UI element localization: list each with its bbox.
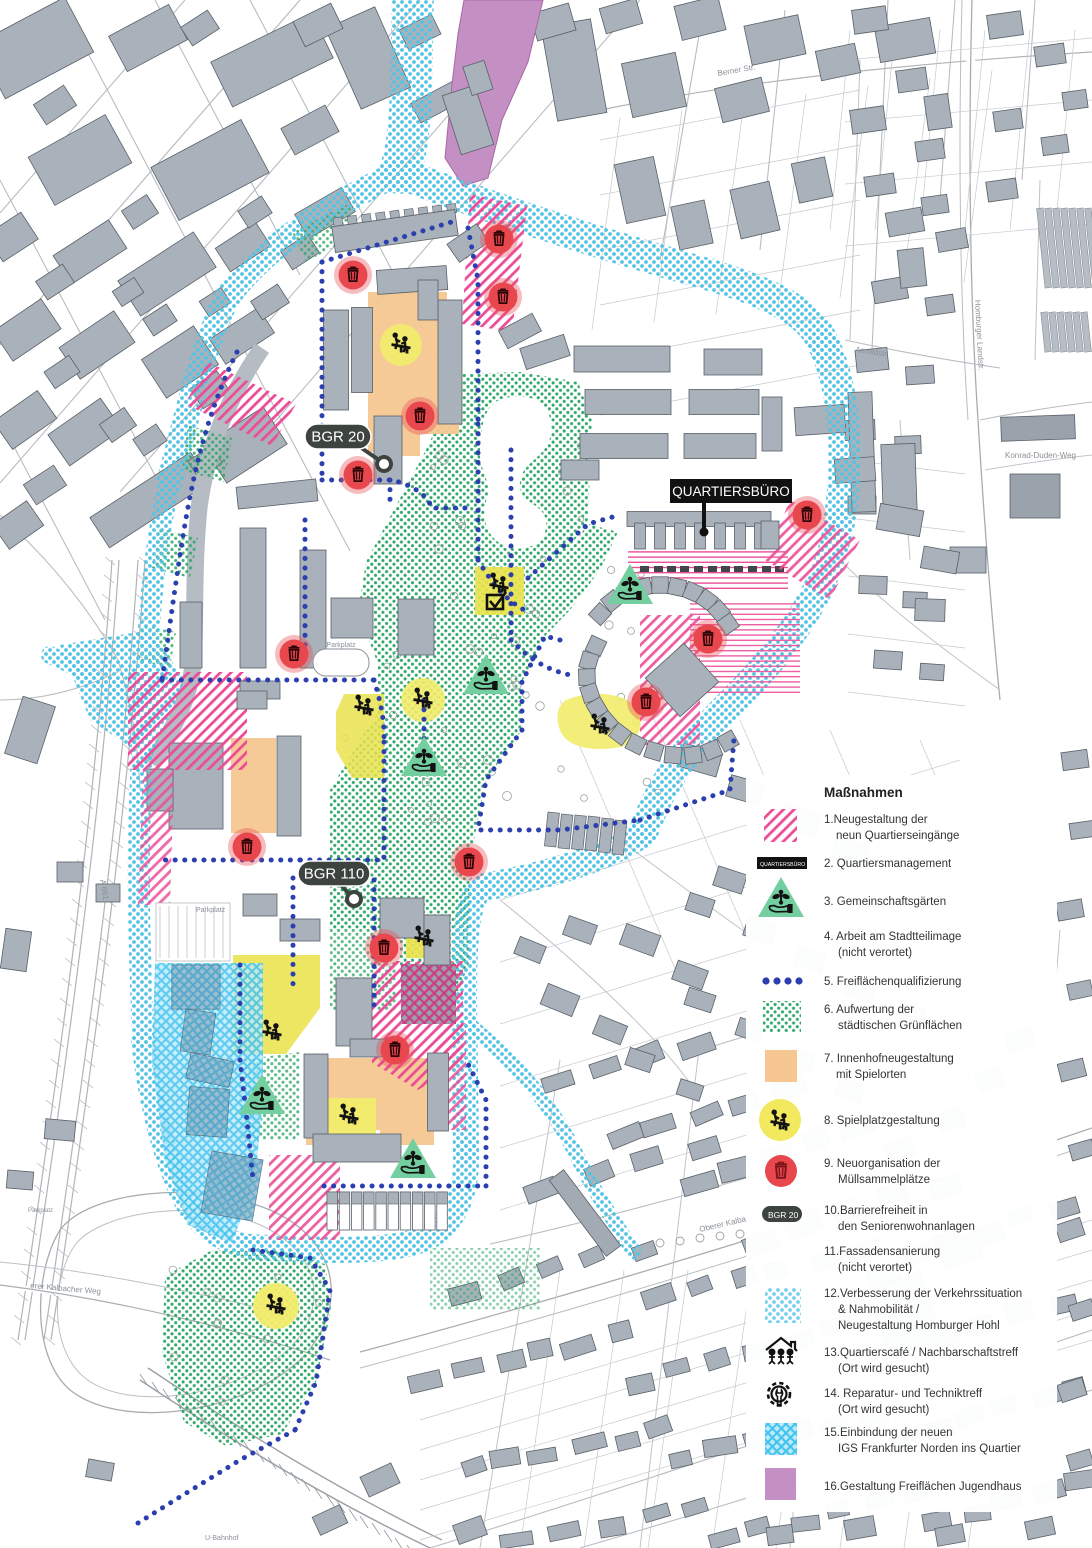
svg-text:städtischen Grünflächen: städtischen Grünflächen [838, 1020, 962, 1032]
svg-text:1.Neugestaltung der: 1.Neugestaltung der [824, 814, 928, 826]
svg-text:2. Quartiersmanagement: 2. Quartiersmanagement [824, 858, 952, 870]
svg-text:QUARTIERSBÜRO: QUARTIERSBÜRO [760, 861, 805, 868]
svg-text:BGR 20: BGR 20 [311, 429, 364, 446]
svg-text:IGS Frankfurter Norden ins Qua: IGS Frankfurter Norden ins Quartier [838, 1443, 1021, 1455]
svg-text:7. Innenhofneugestaltung: 7. Innenhofneugestaltung [824, 1053, 954, 1065]
svg-text:Neugestaltung Homburger Hohl: Neugestaltung Homburger Hohl [838, 1320, 1000, 1332]
svg-text:5. Freiflächenqualifizierung: 5. Freiflächenqualifizierung [824, 976, 961, 988]
svg-text:8. Spielplatzgestaltung: 8. Spielplatzgestaltung [824, 1115, 940, 1127]
svg-text:& Nahmobilität /: & Nahmobilität / [838, 1304, 920, 1316]
svg-text:(Ort wird gesucht): (Ort wird gesucht) [838, 1404, 930, 1416]
svg-text:QUARTIERSBÜRO: QUARTIERSBÜRO [672, 484, 790, 499]
svg-text:12.Verbesserung der Verkehrssi: 12.Verbesserung der Verkehrssituation [824, 1288, 1022, 1300]
svg-text:den Seniorenwohnanlagen: den Seniorenwohnanlagen [838, 1221, 975, 1233]
svg-text:U-Bahnhof: U-Bahnhof [205, 1535, 239, 1542]
svg-text:(nicht verortet): (nicht verortet) [838, 1262, 912, 1274]
svg-text:(nicht verortet): (nicht verortet) [838, 947, 912, 959]
svg-text:15.Einbindung der neuen: 15.Einbindung der neuen [824, 1427, 953, 1439]
svg-text:14. Reparatur- und Techniktref: 14. Reparatur- und Techniktreff [824, 1388, 983, 1400]
svg-text:Maßnahmen: Maßnahmen [824, 785, 903, 800]
svg-text:(Ort wird gesucht): (Ort wird gesucht) [838, 1363, 930, 1375]
svg-text:13.Quartierscafé / Nachbarscha: 13.Quartierscafé / Nachbarschaftstreff [824, 1347, 1019, 1359]
svg-text:11.Fassadensanierung: 11.Fassadensanierung [824, 1246, 940, 1258]
svg-text:Müllsammelplätze: Müllsammelplätze [838, 1174, 930, 1186]
svg-text:Parkplatz: Parkplatz [326, 642, 356, 649]
svg-text:BGR 110: BGR 110 [304, 866, 365, 883]
svg-text:6. Aufwertung der: 6. Aufwertung der [824, 1004, 914, 1016]
svg-text:neun Quartierseingänge: neun Quartierseingänge [836, 830, 959, 842]
svg-text:BGR 20: BGR 20 [768, 1210, 799, 1220]
svg-text:Parkplatz: Parkplatz [196, 907, 226, 914]
svg-text:10.Barrierefreiheit in: 10.Barrierefreiheit in [824, 1205, 928, 1217]
svg-text:4. Arbeit am Stadtteilimage: 4. Arbeit am Stadtteilimage [824, 931, 961, 943]
svg-text:Parkplatz: Parkplatz [28, 1208, 53, 1214]
svg-text:9. Neuorganisation der: 9. Neuorganisation der [824, 1158, 941, 1170]
svg-text:16.Gestaltung Freiflächen Juge: 16.Gestaltung Freiflächen Jugendhaus [824, 1481, 1022, 1493]
svg-text:Konrad-Duden-Weg: Konrad-Duden-Weg [1005, 451, 1076, 460]
svg-text:3. Gemeinschaftsgärten: 3. Gemeinschaftsgärten [824, 896, 946, 908]
svg-text:mit Spielorten: mit Spielorten [836, 1069, 906, 1081]
